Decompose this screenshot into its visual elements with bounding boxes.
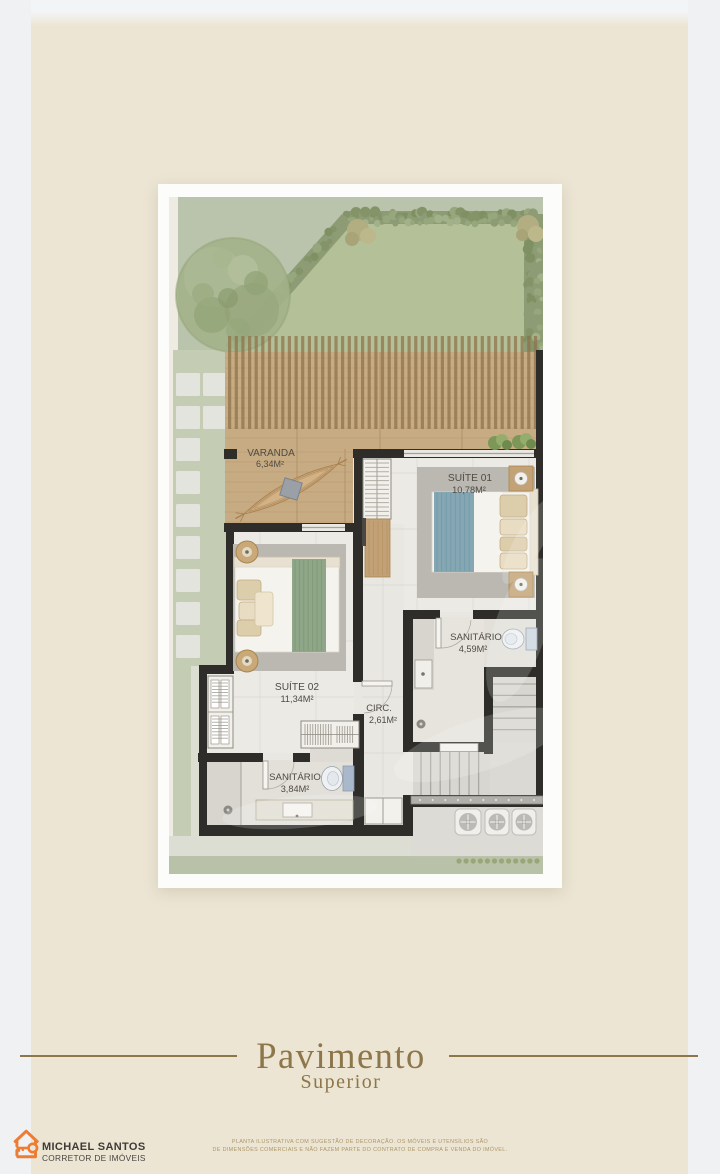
svg-text:11,34M²: 11,34M² bbox=[280, 694, 313, 704]
svg-text:VARANDA: VARANDA bbox=[247, 448, 295, 459]
svg-text:4,59M²: 4,59M² bbox=[459, 644, 488, 654]
svg-text:10,78M²: 10,78M² bbox=[452, 485, 486, 495]
svg-text:SUÍTE 02: SUÍTE 02 bbox=[275, 680, 319, 693]
svg-text:3,84M²: 3,84M² bbox=[281, 784, 310, 794]
svg-text:SANITÁRIO: SANITÁRIO bbox=[269, 772, 321, 783]
svg-text:2,61M²: 2,61M² bbox=[369, 715, 397, 725]
svg-text:6,34M²: 6,34M² bbox=[256, 459, 284, 469]
svg-text:CIRC.: CIRC. bbox=[366, 702, 392, 713]
svg-text:SANITÁRIO: SANITÁRIO bbox=[450, 632, 502, 643]
svg-text:SUÍTE 01: SUÍTE 01 bbox=[448, 471, 492, 484]
